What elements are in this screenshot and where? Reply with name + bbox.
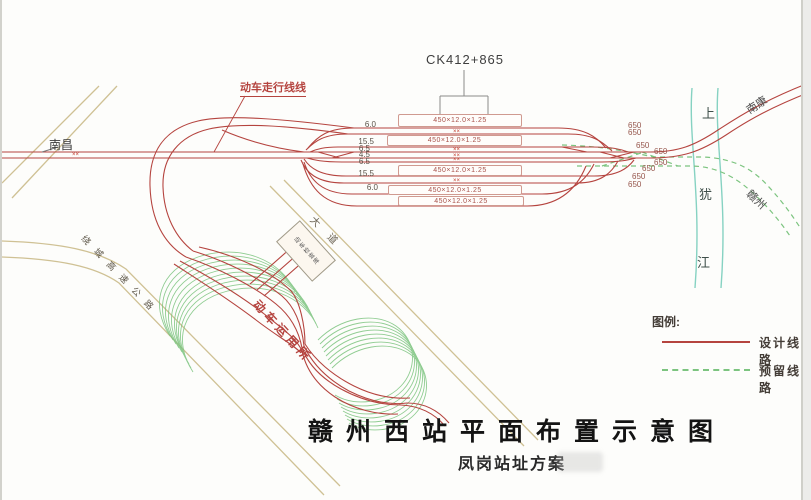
spacing-label: 15.5: [350, 169, 374, 178]
track-length-label: 650: [628, 180, 641, 189]
platform-box: 450×12.0×1.25: [398, 114, 522, 127]
depot-shed-label: 动车检查库: [291, 235, 321, 267]
legend-sample-design: [662, 341, 750, 343]
page-title: 赣州西站平面布置示意图: [282, 412, 752, 448]
destination-nanchang: 南昌: [49, 136, 73, 153]
platform-box: 450×12.0×1.25: [387, 135, 522, 146]
photo-edge-line: [801, 0, 803, 500]
svg-text:××: ××: [453, 178, 461, 184]
legend-title: 图例:: [652, 313, 680, 330]
spacing-label: 6.0: [354, 183, 378, 192]
track-length-label: 650: [654, 158, 667, 167]
spacing-label: 6.5: [346, 157, 370, 166]
reserved-lines: [562, 145, 801, 236]
track-length-label: 650: [654, 147, 667, 156]
platform-box: 450×12.0×1.25: [398, 165, 522, 176]
river-char: 上: [702, 103, 715, 122]
river-char: 犹: [699, 184, 712, 203]
chainage-label: CK412+865: [410, 52, 520, 67]
svg-text:××: ××: [72, 152, 80, 158]
spacing-label: 6.0: [352, 120, 376, 129]
watermark-smudge: [557, 452, 603, 472]
track-length-label: 650: [636, 141, 649, 150]
platform-box: 450×12.0×1.25: [398, 196, 524, 206]
station-plan-diagram: ×× ×× ×× ×× ×× ×× ×× ×× ×× CK412+865 动车走…: [0, 0, 811, 500]
river-char: 江: [697, 252, 710, 271]
platform-box: 450×12.0×1.25: [388, 185, 522, 195]
walking-line-note: 动车走行线线: [240, 79, 306, 97]
legend-sample-reserved: [662, 369, 750, 371]
track-length-label: 650: [628, 128, 641, 137]
svg-text:××: ××: [453, 157, 461, 163]
photo-edge-fade: [803, 0, 811, 500]
